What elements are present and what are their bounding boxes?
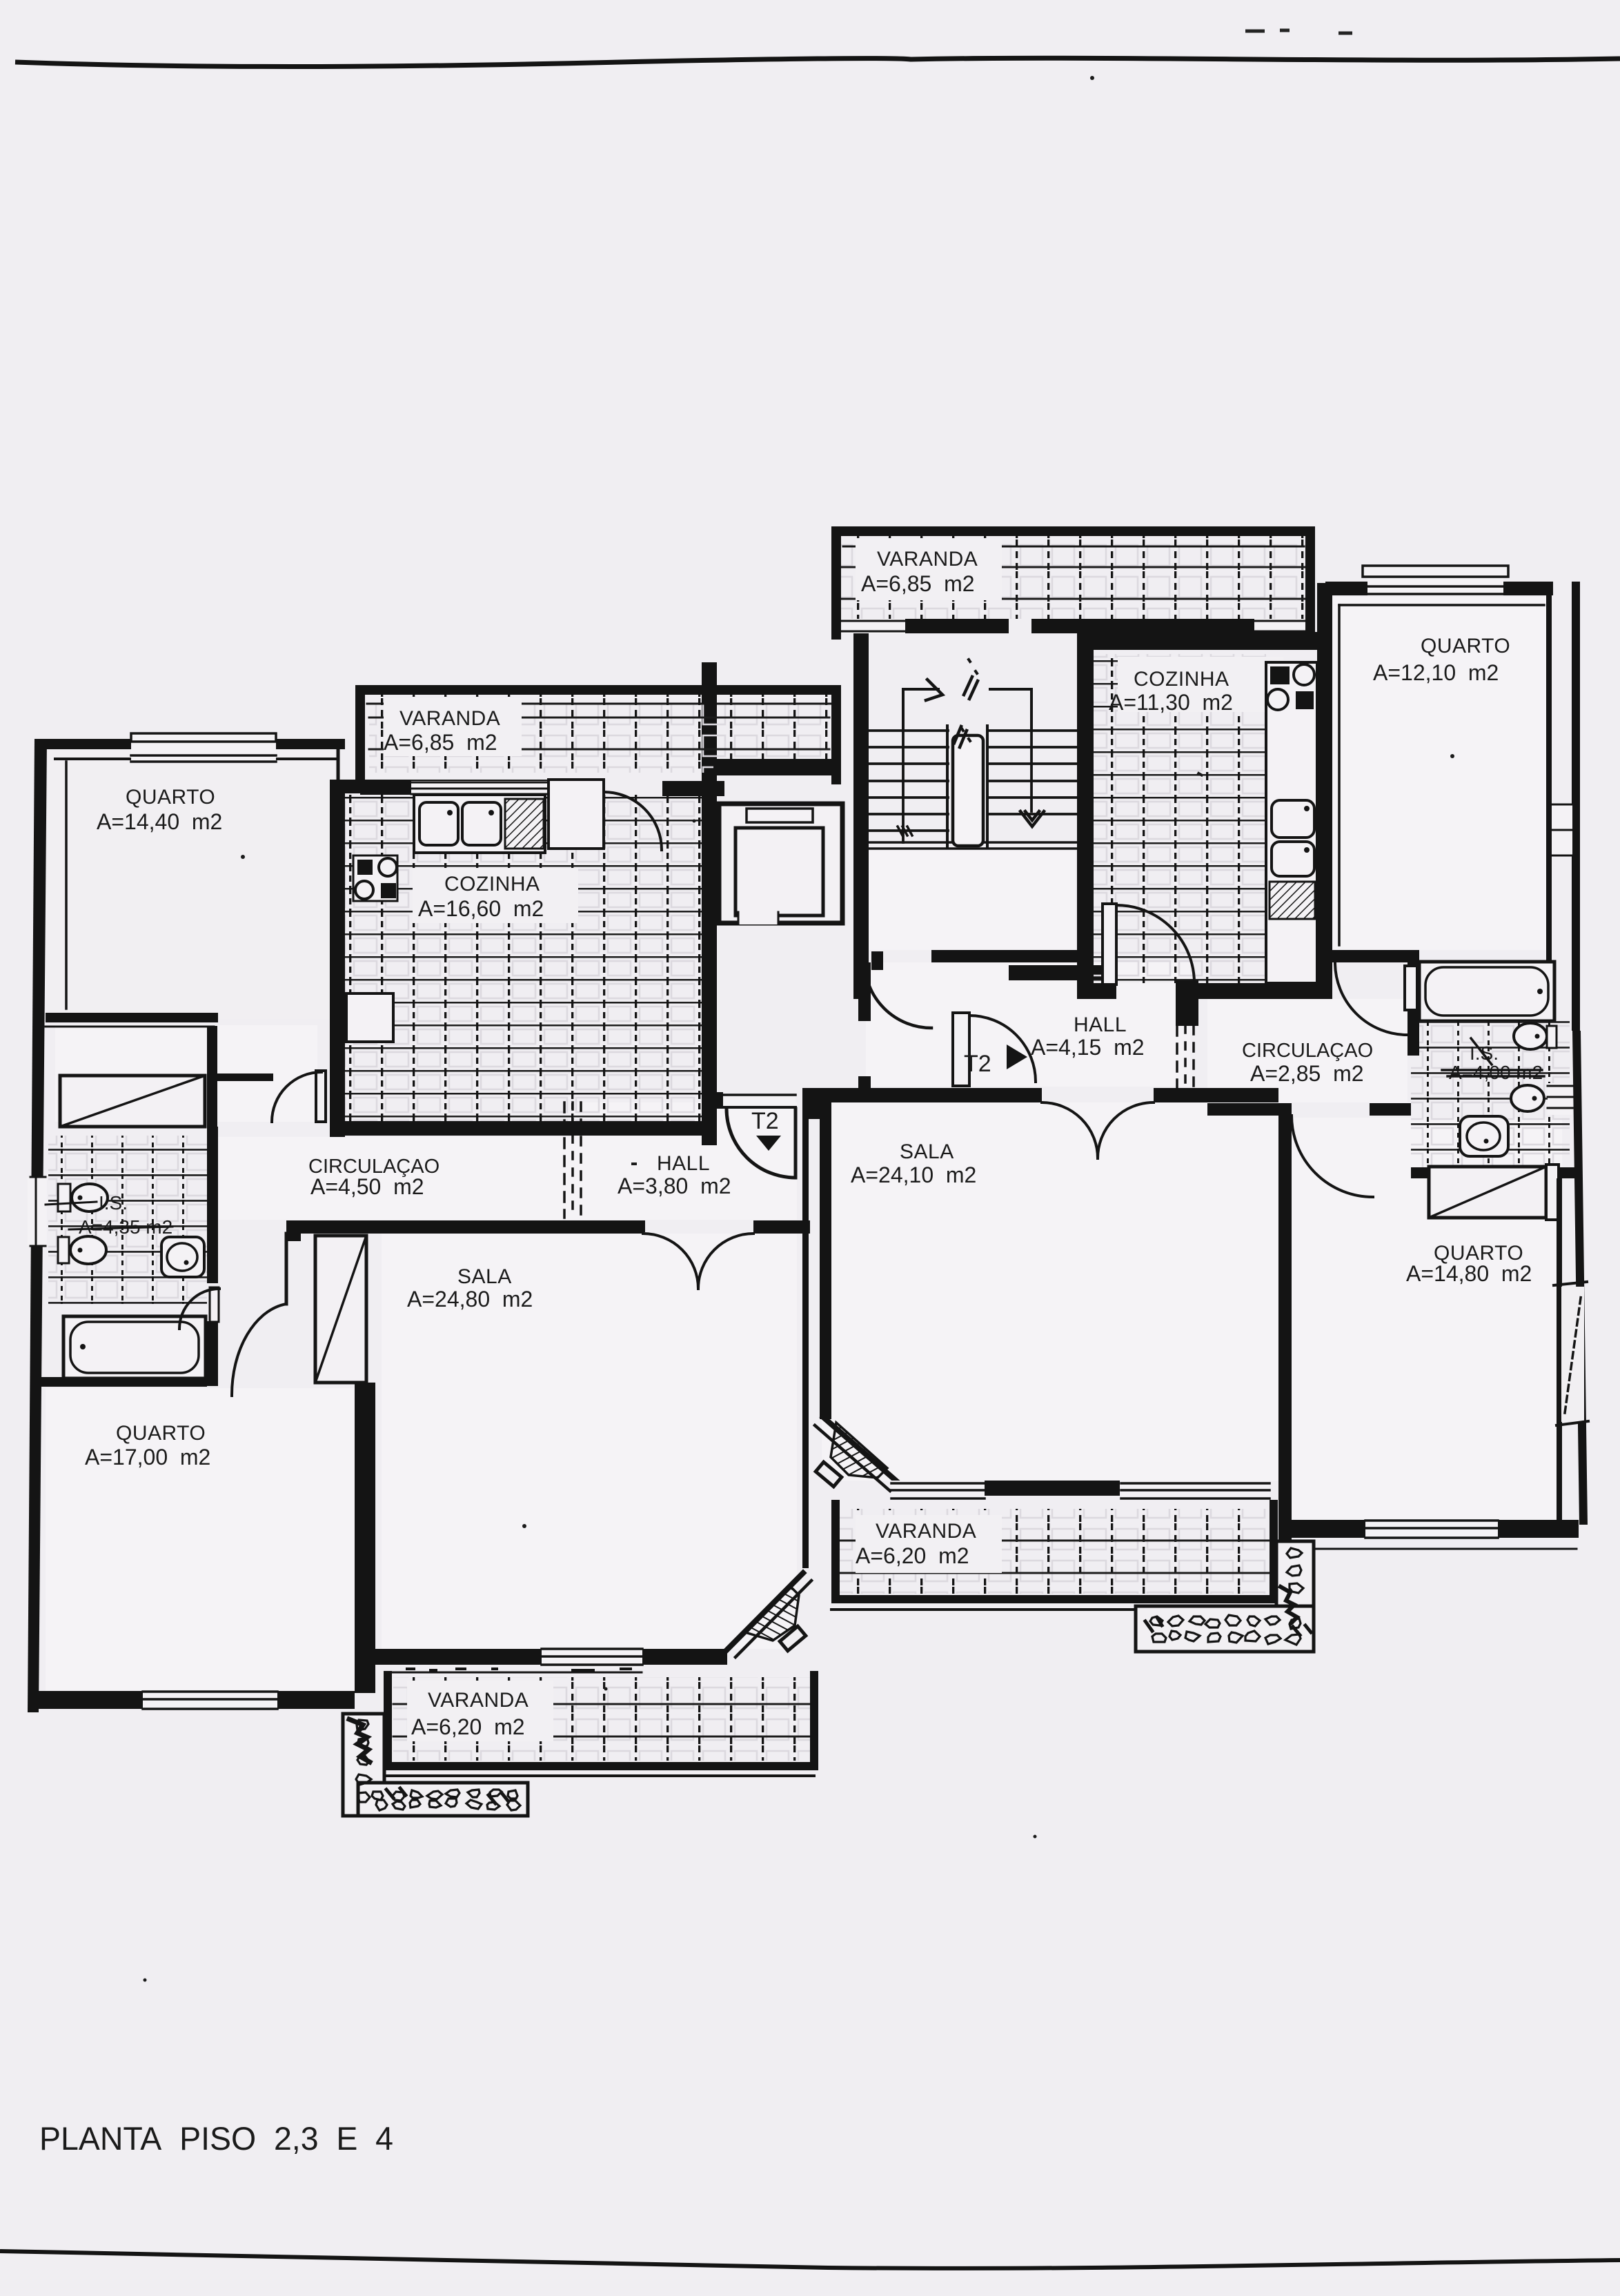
svg-text:A=6,20 m2: A=6,20 m2	[411, 1714, 525, 1739]
svg-text:VARANDA: VARANDA	[876, 1520, 976, 1543]
svg-text:QUARTO: QUARTO	[1421, 635, 1510, 657]
svg-text:COZINHA: COZINHA	[1134, 668, 1229, 691]
svg-text:A=6,20 m2: A=6,20 m2	[856, 1543, 969, 1568]
svg-text:A=16,60 m2: A=16,60 m2	[418, 896, 544, 921]
svg-text:A=4,15 m2: A=4,15 m2	[1031, 1035, 1145, 1060]
svg-text:A=4,50 m2: A=4,50 m2	[310, 1174, 424, 1199]
svg-text:PLANTA PISO 2,3 E 4: PLANTA PISO 2,3 E 4	[39, 2120, 393, 2157]
svg-text:T2: T2	[964, 1051, 991, 1077]
svg-text:QUARTO: QUARTO	[126, 786, 215, 809]
svg-text:A=4,00 m2: A=4,00 m2	[1449, 1062, 1543, 1083]
svg-text:COZINHA: COZINHA	[444, 873, 540, 895]
svg-text:A=2,85 m2: A=2,85 m2	[1250, 1061, 1364, 1086]
svg-text:A=6,85 m2: A=6,85 m2	[384, 730, 497, 755]
svg-text:A=11,30 m2: A=11,30 m2	[1109, 690, 1233, 715]
svg-text:SALA: SALA	[457, 1265, 512, 1288]
svg-text:A=14,40 m2: A=14,40 m2	[97, 809, 222, 834]
svg-text:I.S.: I.S.	[99, 1192, 128, 1214]
svg-text:A=17,00 m2: A=17,00 m2	[85, 1445, 210, 1469]
svg-text:VARANDA: VARANDA	[877, 548, 978, 571]
svg-text:VARANDA: VARANDA	[428, 1689, 529, 1712]
svg-text:SALA: SALA	[900, 1140, 954, 1163]
svg-text:T2: T2	[751, 1108, 779, 1134]
svg-text:A=24,10 m2: A=24,10 m2	[851, 1162, 976, 1187]
svg-text:A=12,10 m2: A=12,10 m2	[1373, 660, 1499, 685]
svg-text:A=3,80 m2: A=3,80 m2	[618, 1174, 731, 1198]
svg-text:A=6,85 m2: A=6,85 m2	[861, 571, 975, 596]
svg-text:HALL: HALL	[1074, 1013, 1127, 1036]
svg-text:HALL: HALL	[657, 1152, 710, 1175]
svg-text:A=14,80 m2: A=14,80 m2	[1406, 1261, 1532, 1286]
svg-text:CIRCULAÇAO: CIRCULAÇAO	[1242, 1040, 1373, 1062]
svg-text:VARANDA: VARANDA	[399, 707, 500, 730]
svg-text:A=24,80 m2: A=24,80 m2	[407, 1287, 533, 1312]
svg-text:QUARTO: QUARTO	[116, 1422, 206, 1445]
